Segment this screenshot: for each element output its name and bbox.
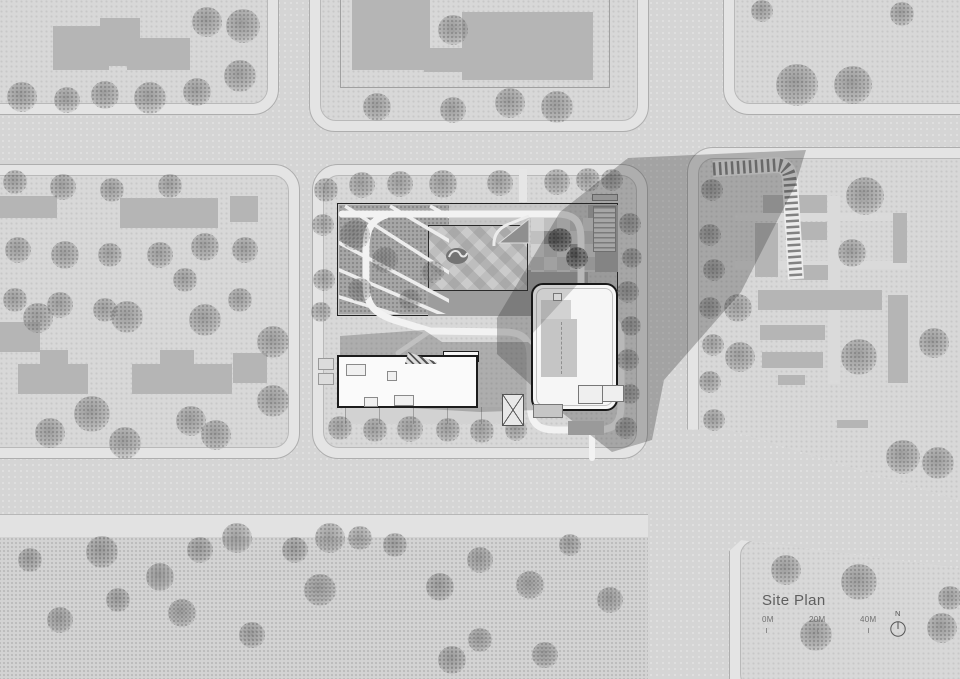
scale-mark-40: 40M [860,615,876,624]
scale-bar: 0M 20M 40M [0,0,960,679]
north-label: N [895,609,900,618]
scale-mark-0: 0M [762,615,774,624]
scale-tick [766,628,767,633]
scale-tick [868,628,869,633]
scale-tick [817,628,818,633]
scale-mark-20: 20M [809,615,825,624]
site-plan-canvas: Site Plan 0M 20M 40M N [0,0,960,679]
